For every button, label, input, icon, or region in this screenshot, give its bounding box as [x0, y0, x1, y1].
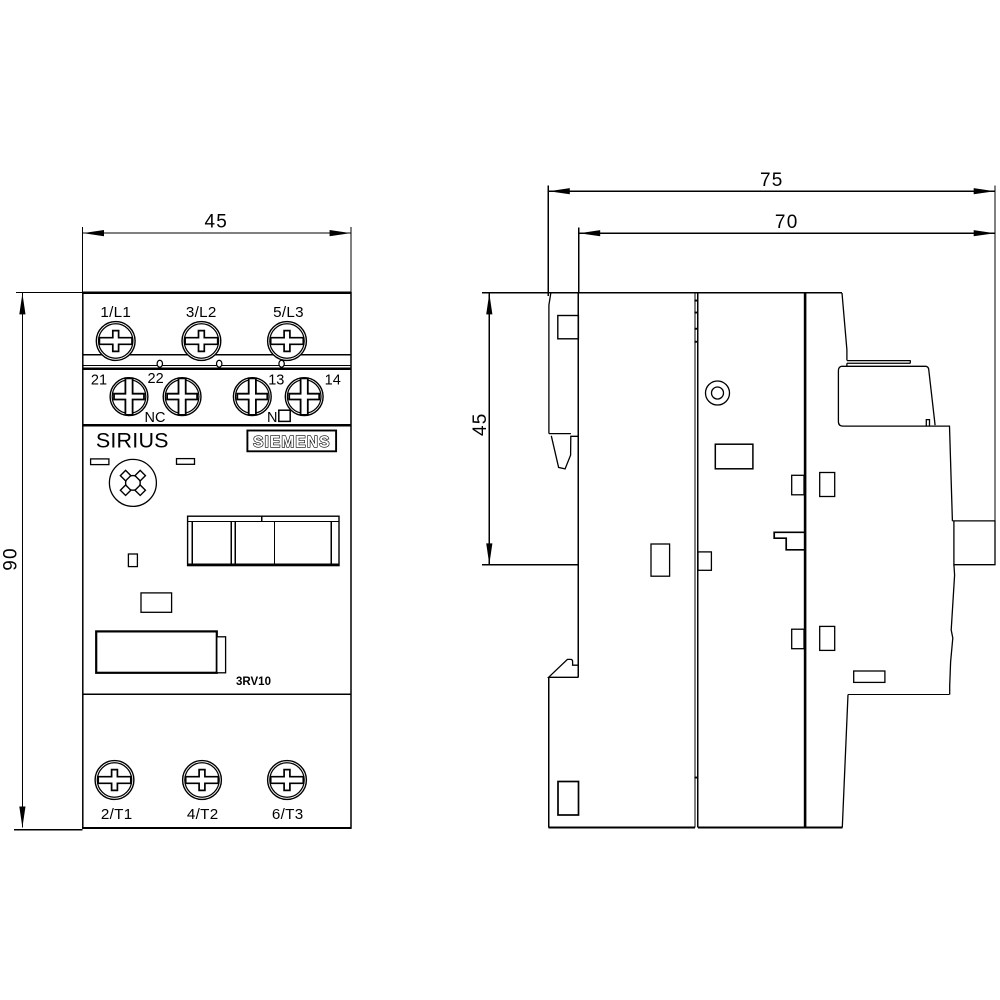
svg-text:90: 90	[1, 547, 22, 571]
svg-text:22: 22	[148, 371, 164, 387]
svg-text:45: 45	[470, 412, 491, 436]
svg-text:3RV10: 3RV10	[236, 676, 271, 688]
svg-text:SIEMENS: SIEMENS	[253, 434, 330, 451]
svg-text:NC: NC	[145, 410, 166, 426]
svg-text:2/T1: 2/T1	[101, 806, 133, 823]
svg-text:N: N	[267, 410, 277, 426]
svg-text:1/L1: 1/L1	[100, 304, 131, 321]
svg-text:13: 13	[268, 373, 284, 389]
svg-text:4/T2: 4/T2	[187, 806, 219, 823]
svg-text:14: 14	[325, 373, 341, 389]
svg-text:5/L3: 5/L3	[273, 304, 304, 321]
svg-text:21: 21	[91, 373, 107, 389]
svg-text:75: 75	[760, 170, 784, 191]
svg-text:70: 70	[775, 212, 799, 233]
svg-text:3/L2: 3/L2	[186, 304, 217, 321]
svg-text:45: 45	[205, 212, 229, 233]
svg-text:6/T3: 6/T3	[272, 806, 304, 823]
svg-text:SIRIUS: SIRIUS	[96, 428, 169, 452]
